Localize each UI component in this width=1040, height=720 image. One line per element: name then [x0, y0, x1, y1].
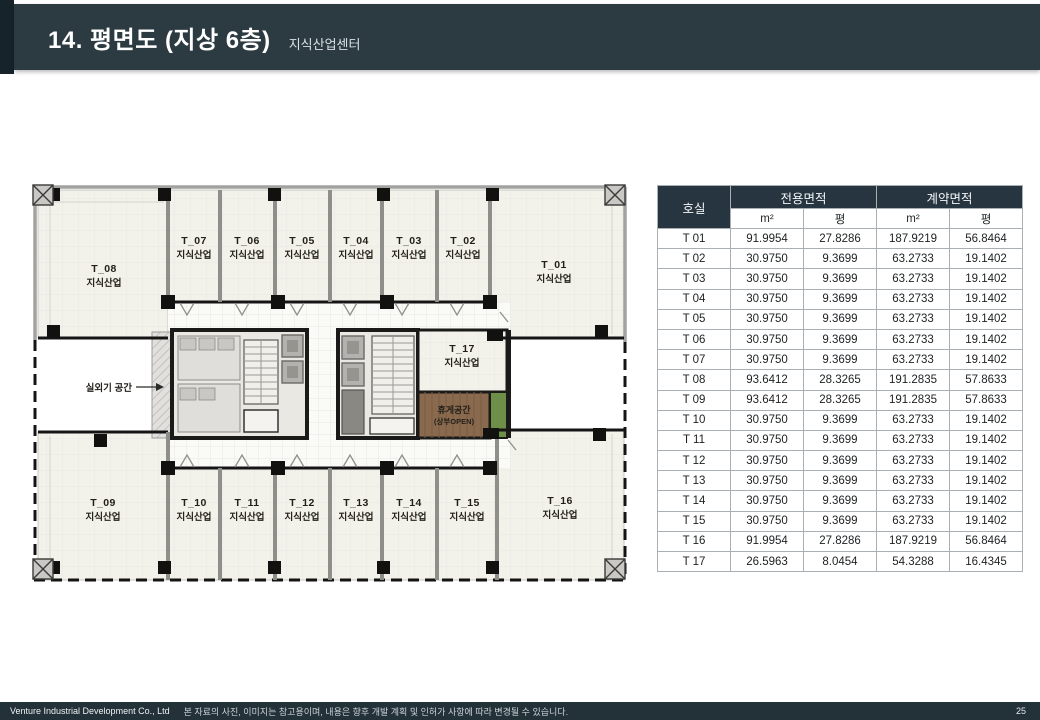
area-value-cell: 57.8633 — [950, 390, 1023, 410]
corner-mark-top-left — [33, 185, 53, 205]
unit-label-t02: T_02 — [450, 235, 476, 247]
table-row: T 0730.97509.369963.273319.1402 — [658, 350, 1023, 370]
room-id-cell: T 09 — [658, 390, 731, 410]
room-t13 — [330, 468, 382, 580]
area-value-cell: 63.2733 — [877, 309, 950, 329]
unit-label-t06: T_06 — [234, 235, 260, 247]
area-value-cell: 63.2733 — [877, 451, 950, 471]
shaft-room — [342, 390, 364, 434]
area-value-cell: 63.2733 — [877, 329, 950, 349]
area-value-cell: 93.6412 — [731, 370, 804, 390]
area-value-cell: 9.3699 — [804, 451, 877, 471]
table-row: T 1691.995427.8286187.921956.8464 — [658, 531, 1023, 551]
unit-label-t05: T_05 — [289, 235, 315, 247]
floor-plan: T_01 지식산업 T_02 지식산업 T_03 지식산업 T_04 지식산업 … — [30, 182, 630, 592]
area-value-cell: 19.1402 — [950, 350, 1023, 370]
area-value-cell: 91.9954 — [731, 531, 804, 551]
rest-area-label: 휴게공간 — [437, 404, 471, 415]
unit-type-t11: 지식산업 — [230, 511, 265, 523]
unit-type-t06: 지식산업 — [230, 249, 265, 261]
unit-type-t15: 지식산업 — [450, 511, 485, 523]
area-value-cell: 30.9750 — [731, 350, 804, 370]
area-value-cell: 63.2733 — [877, 491, 950, 511]
area-value-cell: 30.9750 — [731, 491, 804, 511]
area-value-cell: 63.2733 — [877, 249, 950, 269]
room-t11 — [220, 468, 275, 580]
area-value-cell: 187.9219 — [877, 229, 950, 249]
table-row: T 1430.97509.369963.273319.1402 — [658, 491, 1023, 511]
footer-company: Venture Industrial Development Co., Ltd — [10, 706, 170, 716]
area-value-cell: 28.3265 — [804, 370, 877, 390]
utility-room-left — [244, 410, 278, 432]
area-value-cell: 9.3699 — [804, 430, 877, 450]
area-value-cell: 9.3699 — [804, 410, 877, 430]
area-value-cell: 30.9750 — [731, 511, 804, 531]
room-id-cell: T 03 — [658, 269, 731, 289]
table-row: T 0530.97509.369963.273319.1402 — [658, 309, 1023, 329]
area-value-cell: 54.3288 — [877, 552, 950, 572]
area-value-cell: 63.2733 — [877, 430, 950, 450]
room-id-cell: T 14 — [658, 491, 731, 511]
room-id-cell: T 05 — [658, 309, 731, 329]
area-value-cell: 91.9954 — [731, 229, 804, 249]
table-row: T 1726.59638.045454.328816.4345 — [658, 552, 1023, 572]
unit-label-t16: T_16 — [547, 495, 573, 507]
table-row: T 0330.97509.369963.273319.1402 — [658, 269, 1023, 289]
unit-label-t08: T_08 — [91, 263, 117, 275]
room-id-cell: T 04 — [658, 289, 731, 309]
unit-type-t07: 지식산업 — [177, 249, 212, 261]
room-id-cell: T 16 — [658, 531, 731, 551]
area-value-cell: 187.9219 — [877, 531, 950, 551]
area-value-cell: 19.1402 — [950, 471, 1023, 491]
subcol-exclusive-m2: m² — [731, 209, 804, 229]
area-value-cell: 30.9750 — [731, 410, 804, 430]
area-value-cell: 26.5963 — [731, 552, 804, 572]
area-value-cell: 19.1402 — [950, 329, 1023, 349]
unit-type-t09: 지식산업 — [86, 511, 121, 523]
area-value-cell: 19.1402 — [950, 289, 1023, 309]
area-value-cell: 9.3699 — [804, 491, 877, 511]
area-value-cell: 19.1402 — [950, 269, 1023, 289]
unit-label-t03: T_03 — [396, 235, 422, 247]
unit-label-t04: T_04 — [343, 235, 369, 247]
area-value-cell: 9.3699 — [804, 350, 877, 370]
table-row: T 0430.97509.369963.273319.1402 — [658, 289, 1023, 309]
area-value-cell: 19.1402 — [950, 309, 1023, 329]
unit-type-t05: 지식산업 — [285, 249, 320, 261]
outdoor-unit-label: 실외기 공간 — [86, 382, 133, 394]
area-value-cell: 28.3265 — [804, 390, 877, 410]
unit-label-t15: T_15 — [454, 497, 480, 509]
col-header-exclusive: 전용면적 — [731, 186, 877, 209]
area-value-cell: 8.0454 — [804, 552, 877, 572]
subcol-contract-pyeong: 평 — [950, 209, 1023, 229]
unit-label-t17: T_17 — [449, 343, 475, 355]
table-row: T 1130.97509.369963.273319.1402 — [658, 430, 1023, 450]
page-number: 25 — [1016, 706, 1026, 716]
table-row: T 1330.97509.369963.273319.1402 — [658, 471, 1023, 491]
area-value-cell: 56.8464 — [950, 531, 1023, 551]
page-title: 14. 평면도 (지상 6층) — [48, 20, 271, 55]
table-row: T 0630.97509.369963.273319.1402 — [658, 329, 1023, 349]
area-value-cell: 30.9750 — [731, 249, 804, 269]
area-value-cell: 93.6412 — [731, 390, 804, 410]
unit-type-t08: 지식산업 — [87, 277, 122, 289]
unit-label-t13: T_13 — [343, 497, 369, 509]
area-value-cell: 57.8633 — [950, 370, 1023, 390]
area-value-cell: 56.8464 — [950, 229, 1023, 249]
unit-type-t04: 지식산업 — [339, 249, 374, 261]
room-id-cell: T 11 — [658, 430, 731, 450]
room-t12 — [275, 468, 330, 580]
area-value-cell: 30.9750 — [731, 269, 804, 289]
room-id-cell: T 12 — [658, 451, 731, 471]
area-value-cell: 191.2835 — [877, 390, 950, 410]
footer-bar: Venture Industrial Development Co., Ltd … — [0, 702, 1040, 720]
unit-label-t11: T_11 — [235, 497, 260, 509]
table-row: T 1230.97509.369963.273319.1402 — [658, 451, 1023, 471]
table-row: T 0893.641228.3265191.283557.8633 — [658, 370, 1023, 390]
area-value-cell: 9.3699 — [804, 511, 877, 531]
area-value-cell: 9.3699 — [804, 249, 877, 269]
room-id-cell: T 02 — [658, 249, 731, 269]
area-value-cell: 63.2733 — [877, 471, 950, 491]
area-table-wrap: 호실 전용면적 계약면적 m² 평 m² 평 T 0191.995427.828… — [657, 185, 1023, 572]
unit-label-t10: T_10 — [181, 497, 207, 509]
rest-area-sublabel: (상부OPEN) — [434, 416, 475, 426]
room-id-cell: T 01 — [658, 229, 731, 249]
area-value-cell: 9.3699 — [804, 309, 877, 329]
unit-type-t17: 지식산업 — [445, 357, 480, 369]
unit-type-t03: 지식산업 — [392, 249, 427, 261]
table-row: T 0993.641228.3265191.283557.8633 — [658, 390, 1023, 410]
room-id-cell: T 07 — [658, 350, 731, 370]
unit-type-t16: 지식산업 — [543, 509, 578, 521]
room-id-cell: T 08 — [658, 370, 731, 390]
area-value-cell: 27.8286 — [804, 229, 877, 249]
corner-mark-top-right — [605, 185, 625, 205]
subcol-contract-m2: m² — [877, 209, 950, 229]
area-value-cell: 30.9750 — [731, 329, 804, 349]
area-value-cell: 63.2733 — [877, 511, 950, 531]
corner-mark-bottom-left — [33, 559, 53, 579]
unit-type-t12: 지식산업 — [285, 511, 320, 523]
unit-type-t01: 지식산업 — [537, 273, 572, 285]
corner-mark-bottom-right — [605, 559, 625, 579]
subcol-exclusive-pyeong: 평 — [804, 209, 877, 229]
room-id-cell: T 10 — [658, 410, 731, 430]
area-table-head: 호실 전용면적 계약면적 m² 평 m² 평 — [658, 186, 1023, 229]
header-bar: 14. 평면도 (지상 6층) 지식산업센터 — [14, 4, 1040, 70]
area-value-cell: 9.3699 — [804, 269, 877, 289]
area-value-cell: 9.3699 — [804, 289, 877, 309]
unit-type-t02: 지식산업 — [446, 249, 481, 261]
unit-label-t07: T_07 — [181, 235, 207, 247]
area-value-cell: 63.2733 — [877, 350, 950, 370]
area-value-cell: 191.2835 — [877, 370, 950, 390]
table-row: T 0230.97509.369963.273319.1402 — [658, 249, 1023, 269]
table-row: T 1530.97509.369963.273319.1402 — [658, 511, 1023, 531]
unit-label-t09: T_09 — [90, 497, 116, 509]
room-id-cell: T 17 — [658, 552, 731, 572]
area-value-cell: 19.1402 — [950, 430, 1023, 450]
slide: 14. 평면도 (지상 6층) 지식산업센터 — [0, 0, 1040, 720]
stairs-right — [372, 336, 414, 414]
area-value-cell: 30.9750 — [731, 471, 804, 491]
room-t14 — [382, 468, 437, 580]
room-id-cell: T 13 — [658, 471, 731, 491]
room-id-cell: T 06 — [658, 329, 731, 349]
outdoor-unit-strip — [152, 332, 172, 438]
table-row: T 0191.995427.8286187.921956.8464 — [658, 229, 1023, 249]
room-id-cell: T 15 — [658, 511, 731, 531]
area-value-cell: 9.3699 — [804, 329, 877, 349]
area-value-cell: 16.4345 — [950, 552, 1023, 572]
area-value-cell: 63.2733 — [877, 289, 950, 309]
unit-type-t13: 지식산업 — [339, 511, 374, 523]
table-row: T 1030.97509.369963.273319.1402 — [658, 410, 1023, 430]
area-value-cell: 30.9750 — [731, 289, 804, 309]
area-value-cell: 30.9750 — [731, 309, 804, 329]
col-header-room: 호실 — [658, 186, 731, 229]
area-value-cell: 9.3699 — [804, 471, 877, 491]
area-value-cell: 19.1402 — [950, 410, 1023, 430]
room-t10 — [168, 468, 220, 580]
page-subtitle: 지식산업센터 — [289, 34, 361, 53]
area-value-cell: 30.9750 — [731, 430, 804, 450]
area-table-body: T 0191.995427.8286187.921956.8464T 0230.… — [658, 229, 1023, 572]
col-header-contract: 계약면적 — [877, 186, 1023, 209]
unit-label-t14: T_14 — [396, 497, 422, 509]
stairs-left — [244, 340, 278, 404]
floor-plan-svg: T_01 지식산업 T_02 지식산업 T_03 지식산업 T_04 지식산업 … — [30, 182, 630, 592]
header-accent-strip — [0, 0, 14, 74]
area-value-cell: 19.1402 — [950, 249, 1023, 269]
area-value-cell: 19.1402 — [950, 491, 1023, 511]
core-east-wall — [506, 330, 511, 438]
unit-label-t12: T_12 — [289, 497, 315, 509]
area-value-cell: 30.9750 — [731, 451, 804, 471]
unit-label-t01: T_01 — [541, 259, 567, 271]
rest-area — [418, 392, 490, 438]
unit-type-t10: 지식산업 — [177, 511, 212, 523]
area-value-cell: 19.1402 — [950, 511, 1023, 531]
area-value-cell: 63.2733 — [877, 410, 950, 430]
unit-type-t14: 지식산업 — [392, 511, 427, 523]
area-value-cell: 27.8286 — [804, 531, 877, 551]
core-left — [172, 330, 307, 438]
area-table: 호실 전용면적 계약면적 m² 평 m² 평 T 0191.995427.828… — [657, 185, 1023, 572]
core-right — [338, 330, 418, 438]
utility-room-right — [370, 418, 414, 434]
footer-disclaimer: 본 자료의 사진, 이미지는 참고용이며, 내용은 향후 개발 계획 및 인허가… — [184, 705, 569, 718]
area-value-cell: 63.2733 — [877, 269, 950, 289]
area-value-cell: 19.1402 — [950, 451, 1023, 471]
